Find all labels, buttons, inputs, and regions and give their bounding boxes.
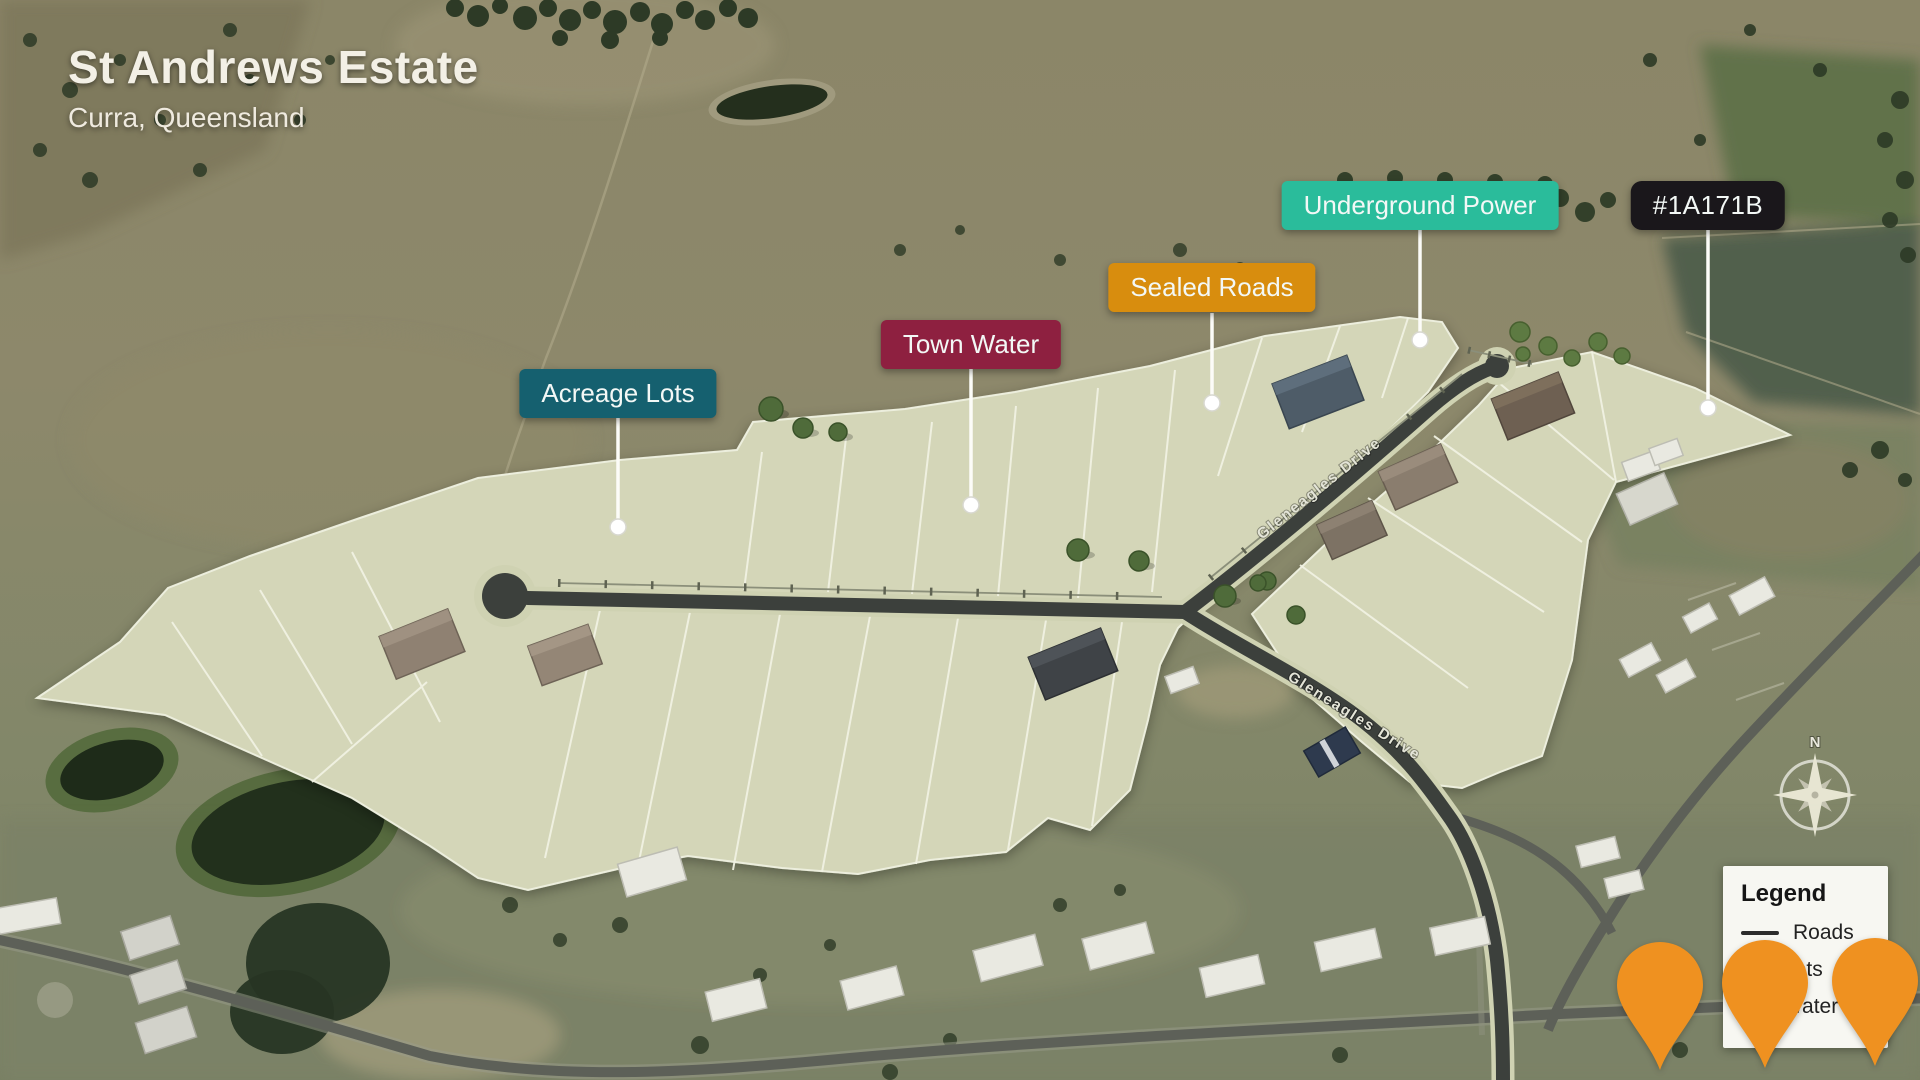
map-pin-icon <box>1715 938 1815 1073</box>
estate-map-image: Gleneagles Drive Gleneagles Drive <box>0 0 1920 1080</box>
callout-underground-power: Underground Power <box>1282 181 1559 230</box>
aerial-map: Gleneagles Drive Gleneagles Drive <box>0 0 1920 1080</box>
leader-dot-sealed-roads <box>1204 395 1220 411</box>
page-subtitle: Curra, Queensland <box>68 102 479 134</box>
map-pin-icon <box>1825 936 1920 1071</box>
leader-dot-underground-power <box>1412 332 1428 348</box>
compass-north-label: N <box>1810 734 1821 751</box>
title-block: St Andrews Estate Curra, Queensland <box>68 40 479 134</box>
callout-town-water: Town Water <box>881 320 1061 369</box>
page-title: St Andrews Estate <box>68 40 479 94</box>
callout-acreage-lots: Acreage Lots <box>519 369 716 418</box>
map-pin-icon <box>1610 940 1710 1075</box>
leader-dot-acreage-lots <box>610 519 626 535</box>
callout-sealed-roads: Sealed Roads <box>1108 263 1315 312</box>
legend-title: Legend <box>1741 880 1888 908</box>
callout-lot-id: #1A171B <box>1631 181 1785 230</box>
legend-roads-swatch <box>1741 931 1779 935</box>
leader-dot-town-water <box>963 497 979 513</box>
leader-dot-lot-id <box>1700 400 1716 416</box>
